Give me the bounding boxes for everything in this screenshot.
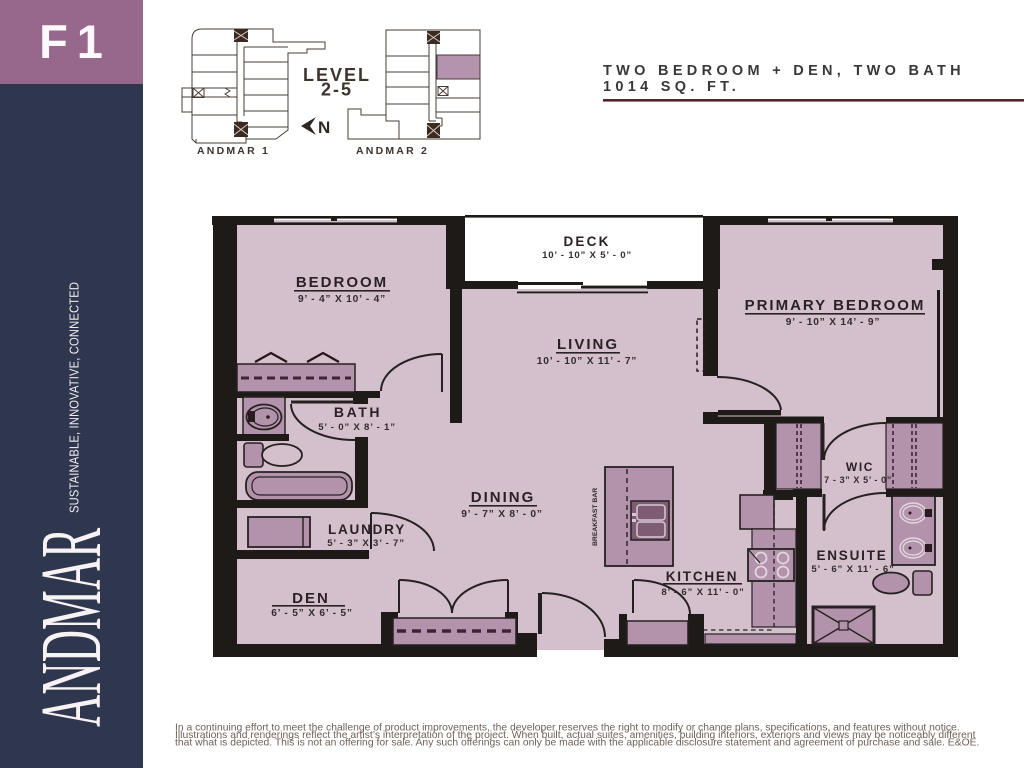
svg-text:ANDMAR 1: ANDMAR 1: [197, 145, 270, 157]
svg-text:DECK: DECK: [563, 234, 610, 249]
svg-text:ENSUITE: ENSUITE: [816, 548, 887, 563]
svg-text:PRIMARY BEDROOM: PRIMARY BEDROOM: [745, 297, 926, 314]
svg-text:5’ - 3” X 3’ - 7”: 5’ - 3” X 3’ - 7”: [327, 538, 405, 549]
svg-text:9’ - 10” X 14’ - 9”: 9’ - 10” X 14’ - 9”: [786, 317, 880, 328]
svg-text:1014 SQ. FT.: 1014 SQ. FT.: [603, 79, 740, 95]
svg-text:8’ - 6” X 11’ - 0”: 8’ - 6” X 11’ - 0”: [661, 587, 744, 598]
svg-text:5’ - 6” X 11’ - 6”: 5’ - 6” X 11’ - 6”: [811, 564, 894, 575]
svg-text:WIC: WIC: [846, 460, 874, 474]
svg-text:DEN: DEN: [292, 590, 330, 607]
svg-text:ANDMAR 2: ANDMAR 2: [356, 145, 429, 157]
svg-text:LIVING: LIVING: [557, 336, 619, 353]
svg-text:that what is depicted. This is: that what is depicted. This is not an of…: [175, 738, 979, 749]
svg-text:5’ - 0” X 8’ - 1”: 5’ - 0” X 8’ - 1”: [318, 422, 396, 433]
svg-text:6’ - 5” X 6’ - 5”: 6’ - 5” X 6’ - 5”: [271, 608, 353, 619]
svg-text:KITCHEN: KITCHEN: [666, 569, 739, 584]
svg-text:9’ - 4” X 10’ - 4”: 9’ - 4” X 10’ - 4”: [298, 294, 386, 305]
svg-text:10’ - 10” X 5’ - 0”: 10’ - 10” X 5’ - 0”: [542, 250, 632, 261]
svg-text:DINING: DINING: [471, 489, 536, 506]
svg-text:SUSTAINABLE, INNOVATIVE, CONNE: SUSTAINABLE, INNOVATIVE, CONNECTED: [67, 282, 82, 513]
svg-text:TWO BEDROOM + DEN, TWO BATH: TWO BEDROOM + DEN, TWO BATH: [603, 63, 965, 79]
svg-text:BATH: BATH: [334, 404, 382, 420]
svg-text:LAUNDRY: LAUNDRY: [328, 522, 406, 537]
svg-text:N: N: [318, 118, 330, 137]
svg-text:2-5: 2-5: [321, 80, 353, 100]
svg-text:9’ - 7” X 8’ - 0”: 9’ - 7” X 8’ - 0”: [461, 509, 543, 520]
svg-text:BEDROOM: BEDROOM: [296, 274, 388, 291]
svg-text:7 - 3” X 5’ - 0”: 7 - 3” X 5’ - 0”: [824, 475, 892, 485]
svg-text:ANDMAR: ANDMAR: [22, 527, 119, 727]
svg-text:BREAKFAST BAR: BREAKFAST BAR: [592, 488, 599, 546]
svg-text:10’ - 10” X 11’ - 7”: 10’ - 10” X 11’ - 7”: [537, 356, 637, 367]
svg-text:F1: F1: [39, 15, 112, 68]
